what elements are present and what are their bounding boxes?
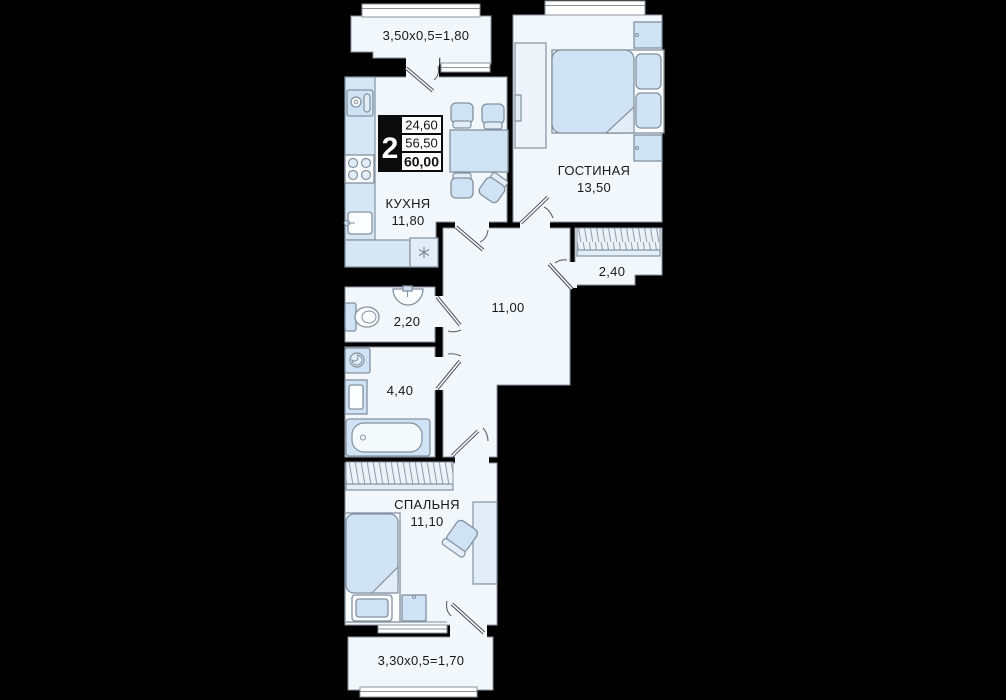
pillow	[636, 93, 661, 128]
label-balcony-bottom-dimension: 3,30x0,5=1,70	[378, 653, 465, 668]
kitchen-table	[450, 130, 508, 172]
kitchen-sink-icon	[344, 212, 372, 234]
label-living-area: 13,50	[577, 180, 611, 195]
double-bed	[552, 50, 664, 133]
living-wardrobe-unit	[515, 43, 546, 148]
fridge-icon	[410, 238, 438, 267]
opening-bedroom	[455, 455, 489, 465]
nightstand	[634, 135, 662, 161]
info-badge: 2 24,60 56,50 60,00	[378, 115, 443, 172]
label-living-name: ГОСТИНАЯ	[558, 163, 631, 178]
label-wardrobe-area: 2,40	[599, 264, 626, 279]
badge-area-total: 60,00	[404, 154, 439, 170]
label-bedroom-name: СПАЛЬНЯ	[394, 497, 460, 512]
wardrobe-rail	[577, 228, 660, 256]
label-bedroom-area: 11,10	[410, 514, 443, 529]
window-living	[545, 1, 645, 15]
badge-area-2: 56,50	[405, 136, 438, 151]
bedroom-wardrobe-rail	[346, 462, 453, 490]
label-hallway-area: 11,00	[491, 300, 524, 315]
window-balcony-bottom	[360, 687, 477, 697]
pillow	[636, 54, 661, 89]
floor-plan: 2 24,60 56,50 60,00	[0, 0, 1006, 700]
label-balcony-top-dimension: 3,50x0,5=1,80	[383, 28, 470, 43]
label-kitchen-name: КУХНЯ	[386, 196, 431, 211]
stove-icon	[345, 155, 374, 183]
window-balcony-top	[362, 4, 480, 17]
badge-room-count: 2	[382, 132, 399, 165]
desk	[473, 502, 497, 584]
pillow	[356, 599, 388, 617]
bathtub-icon	[346, 419, 430, 456]
kitchen-chair	[451, 173, 473, 198]
opening-balcony-top	[406, 56, 439, 79]
washing-machine-icon	[345, 348, 370, 373]
bathroom-sink-icon	[345, 380, 367, 414]
kitchen-chair	[451, 103, 473, 128]
label-bathroom-area: 4,40	[387, 383, 414, 398]
oven-icon	[347, 90, 373, 116]
nightstand	[634, 22, 662, 48]
label-toilet-area: 2,20	[394, 314, 421, 329]
label-kitchen-area: 11,80	[391, 213, 424, 228]
window-bedroom	[378, 625, 447, 633]
window-kitchen-balcony	[441, 63, 490, 72]
badge-area-1: 24,60	[405, 118, 438, 133]
nightstand	[402, 595, 426, 621]
single-bed	[345, 513, 400, 622]
kitchen-chair	[482, 104, 504, 129]
